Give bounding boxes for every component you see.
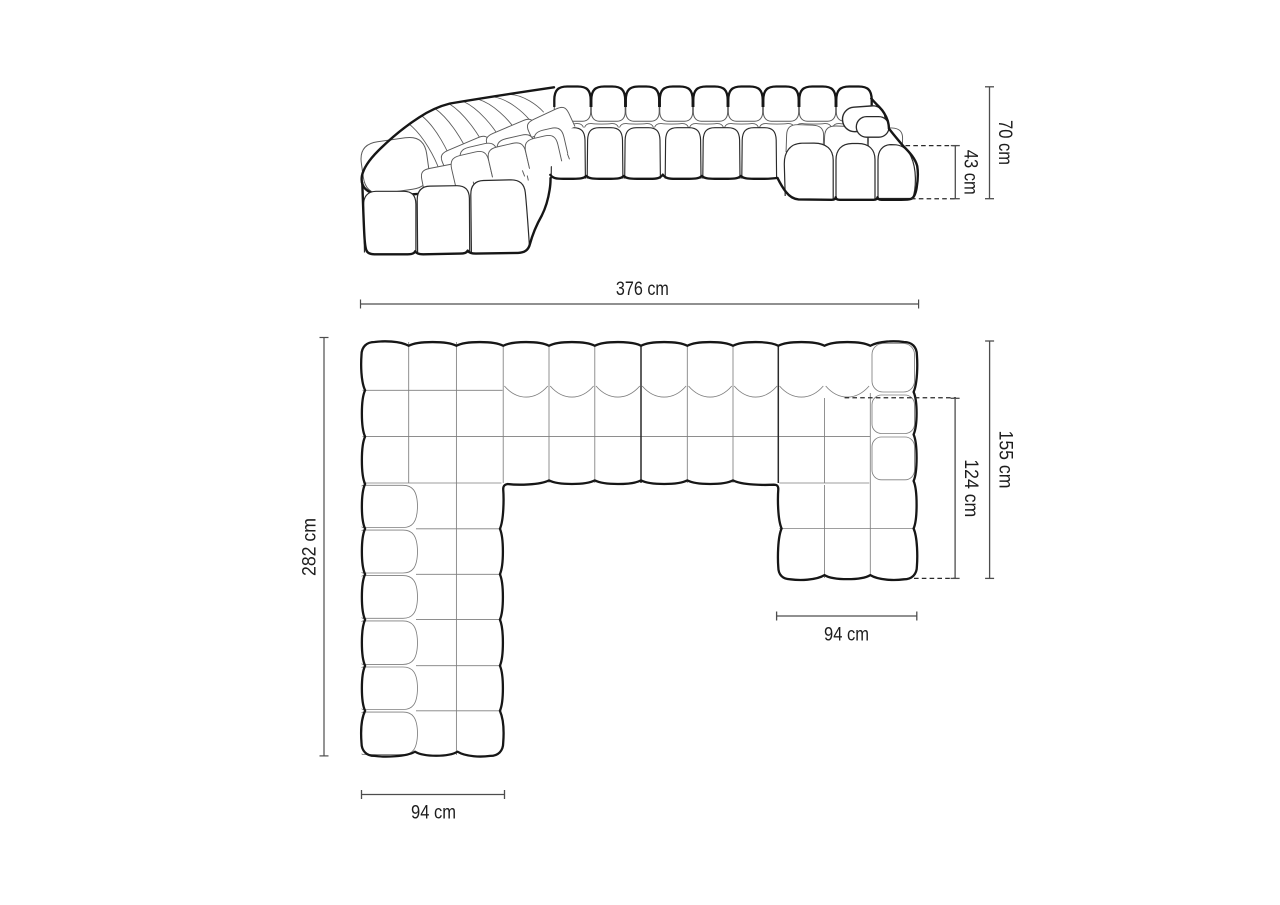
svg-text:94 cm: 94 cm [824,624,869,646]
svg-text:70 cm: 70 cm [994,120,1016,165]
svg-text:124 cm: 124 cm [960,459,982,517]
svg-text:43 cm: 43 cm [960,150,982,195]
svg-text:376 cm: 376 cm [616,278,669,300]
svg-text:94 cm: 94 cm [411,802,456,824]
svg-text:155 cm: 155 cm [995,431,1017,489]
svg-text:282 cm: 282 cm [299,518,321,576]
